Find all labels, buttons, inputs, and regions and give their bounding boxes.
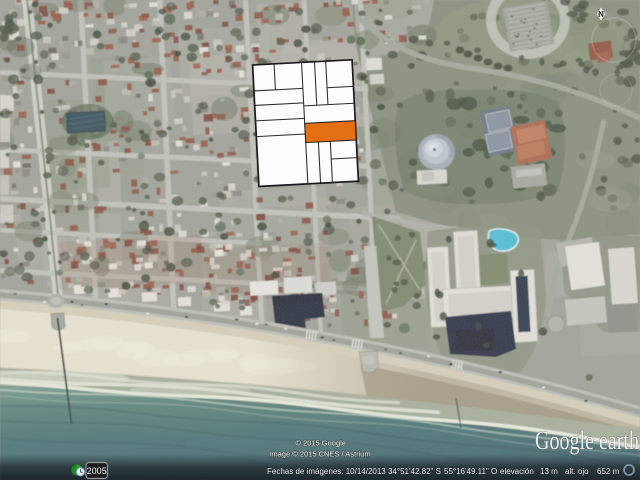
svg-text:N: N bbox=[598, 10, 604, 19]
svg-text:elevación: elevación bbox=[500, 467, 534, 476]
svg-text:13 m: 13 m bbox=[540, 467, 558, 476]
svg-text:652 m: 652 m bbox=[597, 467, 620, 476]
svg-text:34°51'42.82" S: 34°51'42.82" S bbox=[388, 467, 441, 476]
svg-text:2005: 2005 bbox=[87, 466, 107, 476]
svg-text:55°16'49.11" O: 55°16'49.11" O bbox=[444, 467, 497, 476]
svg-text:Google earth: Google earth bbox=[535, 426, 639, 455]
svg-text:alt. ojo: alt. ojo bbox=[565, 467, 589, 476]
svg-text:Fechas de imágenes: 10/14/2013: Fechas de imágenes: 10/14/2013 bbox=[267, 467, 386, 476]
svg-text:© 2015 Google: © 2015 Google bbox=[295, 439, 346, 448]
